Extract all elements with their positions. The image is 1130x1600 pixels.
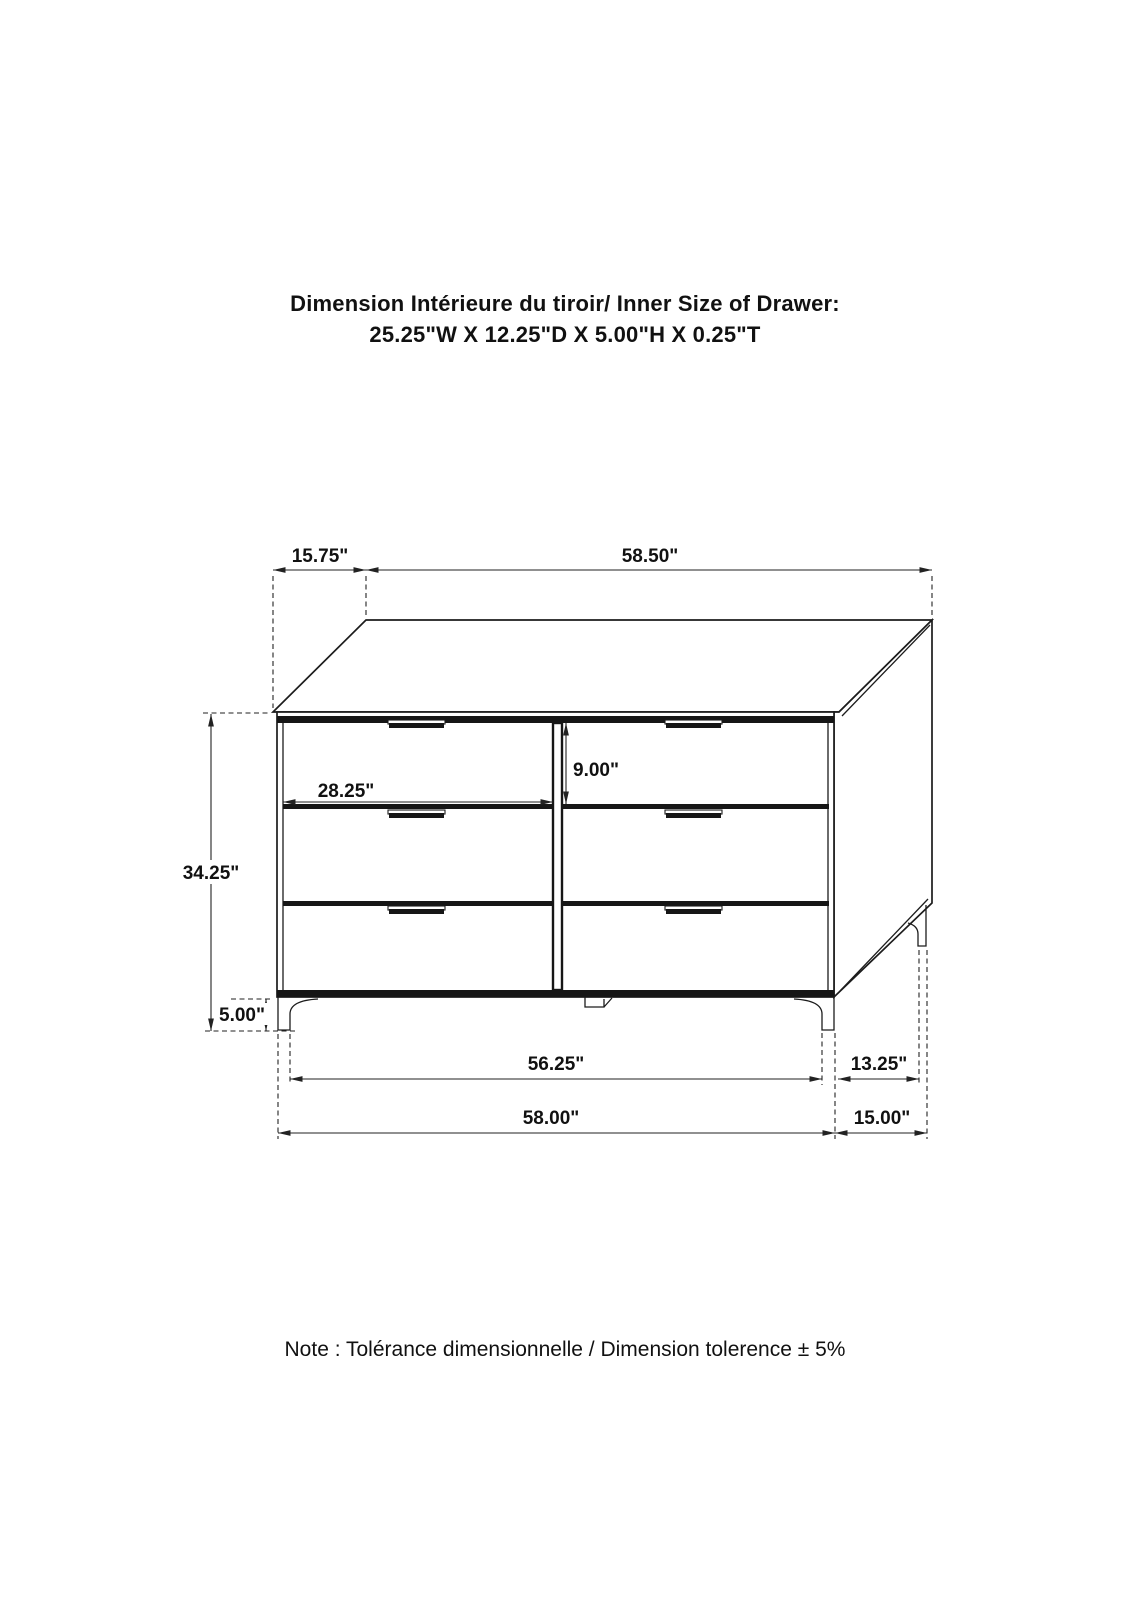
drawer-handle-middle-left xyxy=(388,810,445,818)
dim-label-drawer-height: 9.00" xyxy=(573,760,619,781)
dresser-top-surface xyxy=(273,620,932,712)
dim-label-side-depth: 15.00" xyxy=(854,1108,911,1129)
front-left-leg xyxy=(278,997,318,1030)
drawer-handle-middle-right xyxy=(665,810,722,818)
front-right-leg xyxy=(794,997,834,1030)
drawer-center-divider xyxy=(553,723,562,990)
center-foot xyxy=(585,997,612,1007)
dim-label-top-width: 58.50" xyxy=(622,546,679,567)
dim-label-leg-height: 5.00" xyxy=(219,1005,265,1026)
dim-label-drawer-width: 28.25" xyxy=(318,781,375,802)
drawer-handle-top-right xyxy=(665,720,722,728)
drawer-handle-bottom-right xyxy=(665,906,722,914)
dim-label-base-width: 58.00" xyxy=(523,1108,580,1129)
dim-label-overall-height: 34.25" xyxy=(183,863,240,884)
dim-label-top-depth-offset: 15.75" xyxy=(292,546,349,567)
technical-drawing-page: Dimension Intérieure du tiroir/ Inner Si… xyxy=(0,0,1130,1600)
dresser-body xyxy=(273,620,932,1030)
drawer-handle-top-left xyxy=(388,720,445,728)
dim-label-side-leg-span: 13.25" xyxy=(851,1054,908,1075)
dim-label-front-leg-span: 56.25" xyxy=(528,1054,585,1075)
drawer-handle-bottom-left xyxy=(388,906,445,914)
tolerance-note: Note : Tolérance dimensionnelle / Dimens… xyxy=(0,1338,1130,1362)
